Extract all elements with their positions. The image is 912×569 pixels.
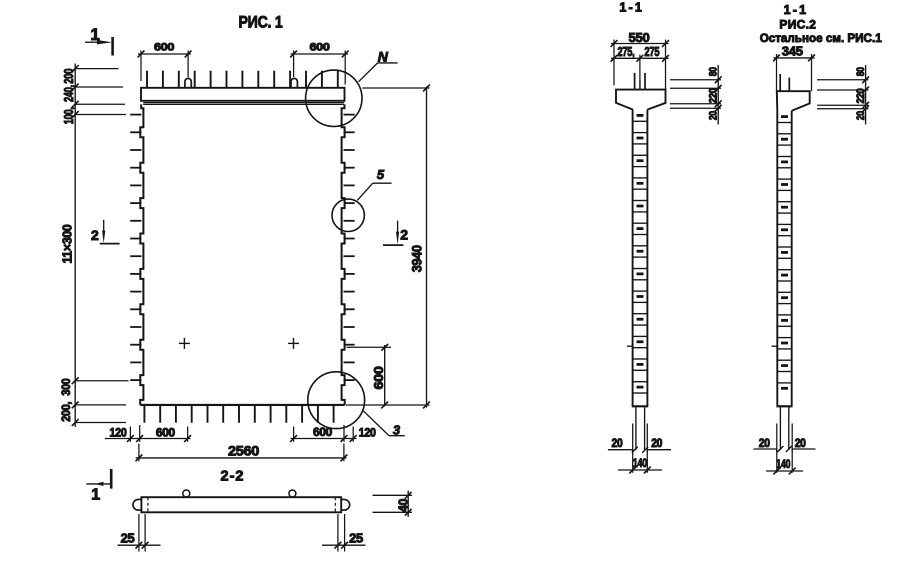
svg-text:80: 80	[855, 67, 867, 76]
svg-text:120: 120	[359, 428, 376, 440]
svg-text:240,: 240,	[61, 85, 76, 102]
svg-text:1: 1	[91, 487, 100, 504]
svg-text:600: 600	[310, 42, 330, 54]
svg-text:20: 20	[651, 438, 662, 450]
svg-text:345: 345	[782, 44, 803, 58]
svg-text:140: 140	[776, 457, 790, 471]
svg-text:220: 220	[707, 88, 719, 103]
svg-text:25: 25	[121, 531, 135, 546]
svg-text:20: 20	[759, 438, 770, 450]
svg-text:N: N	[378, 48, 389, 64]
svg-text:20: 20	[795, 438, 806, 450]
svg-text:600: 600	[313, 427, 332, 439]
svg-text:20: 20	[855, 111, 867, 120]
svg-text:200,: 200,	[59, 402, 73, 422]
svg-text:120: 120	[110, 427, 127, 439]
svg-text:40: 40	[397, 499, 411, 513]
svg-text:25: 25	[349, 531, 363, 546]
svg-text:20: 20	[612, 438, 623, 450]
svg-text:220: 220	[855, 88, 867, 103]
svg-text:Остальное см. РИС.1: Остальное см. РИС.1	[760, 31, 882, 45]
svg-text:80: 80	[707, 67, 719, 76]
svg-text:РИС.2: РИС.2	[779, 17, 816, 31]
svg-text:1-1: 1-1	[619, 1, 644, 15]
svg-text:2560: 2560	[228, 444, 259, 459]
svg-text:200: 200	[61, 69, 76, 84]
svg-text:2: 2	[400, 227, 408, 243]
svg-text:РИС. 1: РИС. 1	[239, 13, 283, 32]
svg-text:2-2: 2-2	[221, 469, 245, 485]
svg-text:300: 300	[59, 378, 73, 396]
svg-text:550: 550	[629, 30, 650, 45]
svg-text:3940: 3940	[410, 245, 425, 272]
svg-text:2: 2	[91, 227, 99, 243]
svg-text:5: 5	[377, 167, 385, 182]
svg-text:600: 600	[156, 427, 175, 439]
svg-text:600: 600	[371, 366, 386, 389]
svg-text:140: 140	[633, 456, 647, 470]
svg-text:20: 20	[707, 111, 719, 120]
svg-text:600: 600	[154, 42, 174, 54]
svg-text:275,: 275,	[618, 45, 635, 59]
svg-text:1-1: 1-1	[784, 3, 809, 17]
svg-text:100,: 100,	[61, 107, 76, 124]
svg-text:275: 275	[644, 45, 659, 59]
svg-text:3: 3	[393, 422, 401, 437]
svg-text:11×300: 11×300	[61, 224, 75, 263]
